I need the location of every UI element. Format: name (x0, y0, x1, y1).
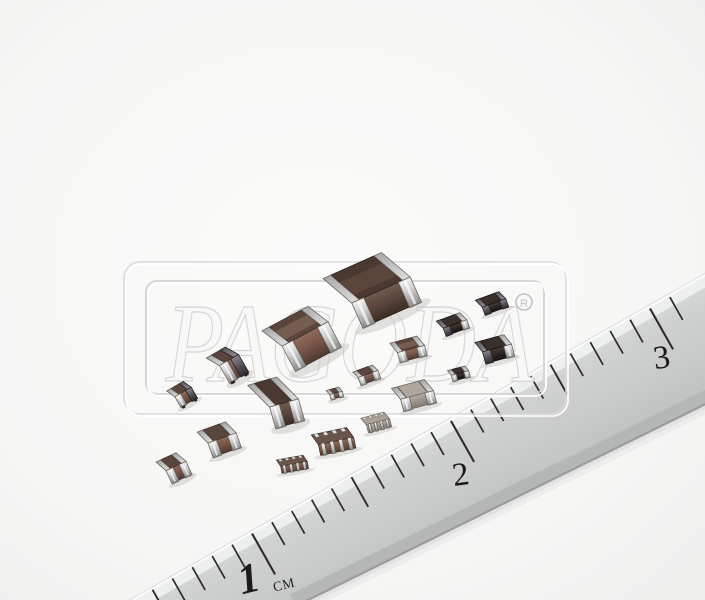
svg-text:R: R (520, 298, 528, 310)
